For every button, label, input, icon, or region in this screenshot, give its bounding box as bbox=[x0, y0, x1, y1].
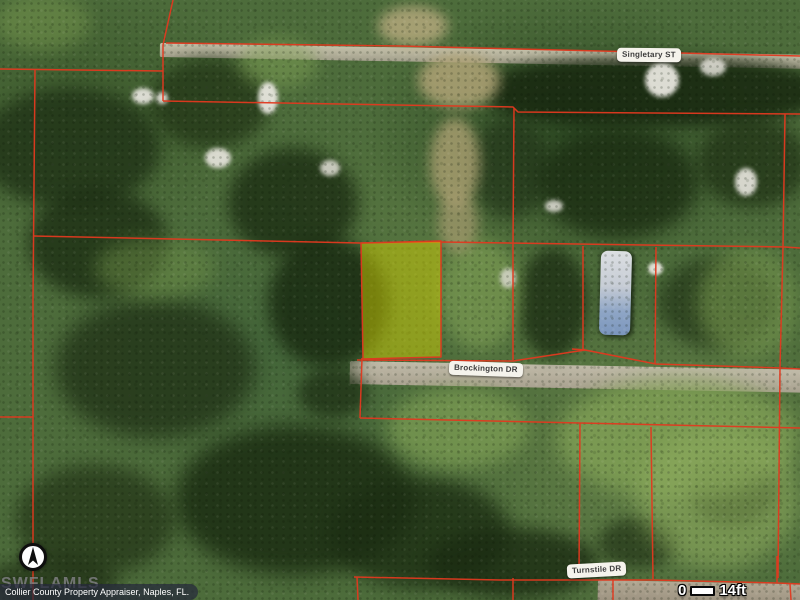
aerial-map-viewport[interactable]: Singletary ST Brockington DR Turnstile D… bbox=[0, 0, 800, 600]
scale-end-label: 14ft bbox=[719, 582, 746, 599]
street-label-singletary: Singletary ST bbox=[617, 48, 681, 63]
highlighted-subject-parcel[interactable] bbox=[361, 241, 441, 359]
street-label-brockington: Brockington DR bbox=[449, 361, 523, 378]
north-arrow-icon bbox=[22, 546, 44, 568]
scale-start-label: 0 bbox=[678, 582, 686, 599]
scale-bar-segment bbox=[690, 586, 715, 596]
attribution-text: Collier County Property Appraiser, Naple… bbox=[0, 584, 198, 600]
north-compass bbox=[19, 543, 47, 571]
map-scale-bar: 0 14ft bbox=[678, 582, 746, 599]
